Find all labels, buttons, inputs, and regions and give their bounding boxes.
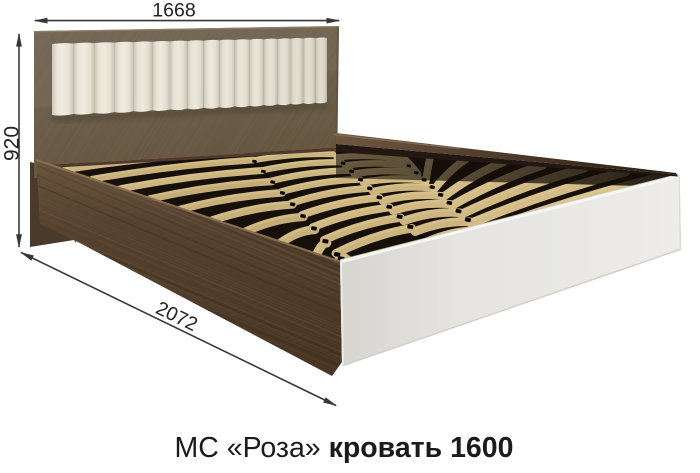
svg-text:920: 920 (1, 126, 24, 161)
svg-text:1668: 1668 (152, 0, 195, 22)
svg-text:МС «Роза» кровать 1600: МС «Роза» кровать 1600 (175, 432, 514, 464)
